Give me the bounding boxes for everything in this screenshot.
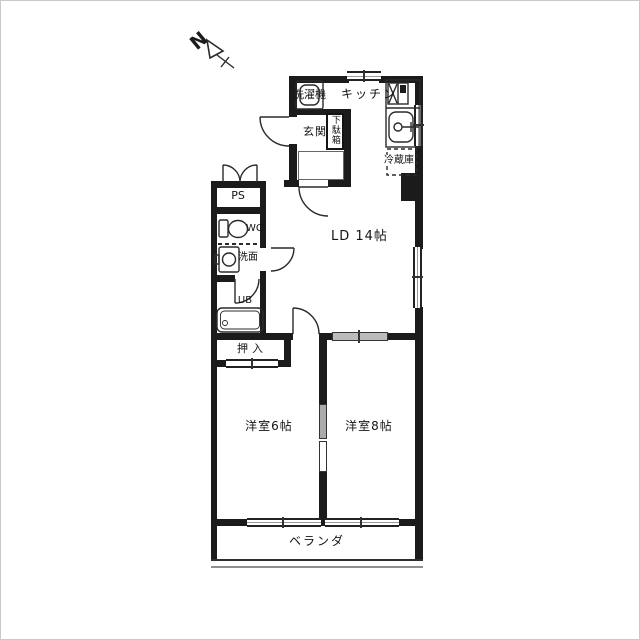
label-washroom: 洗面 <box>238 252 258 263</box>
wall-mid-horizontal-3 <box>388 333 422 340</box>
wall-pillar <box>401 173 423 201</box>
wall-closet-bottom-left <box>211 360 226 367</box>
floorplan-canvas: N <box>0 0 640 640</box>
wall-top-left <box>290 76 349 83</box>
label-washer: 洗濯機 <box>293 89 326 101</box>
window-mid-line <box>247 522 321 523</box>
window-tick <box>282 517 284 528</box>
label-shoe-cabinet: 下駄箱 <box>329 115 339 148</box>
label-pipe-space: PS <box>215 190 261 202</box>
window-tick <box>413 124 424 126</box>
wall-bedroom-divider-lower <box>319 471 327 519</box>
label-toilet: WC <box>246 223 263 234</box>
label-balcony: ベランダ <box>265 535 369 548</box>
north-arrow-icon: N <box>186 27 234 68</box>
entrance-door-arc <box>260 117 289 146</box>
hall-living-door-arc <box>299 187 328 216</box>
wall-right-2 <box>415 144 423 174</box>
wall-hall-stub-right <box>328 180 351 187</box>
fusuma-tick <box>251 358 253 369</box>
wall-bottom-3 <box>397 519 423 526</box>
wall-hall-stub-left <box>284 180 299 187</box>
label-entrance: 玄関 <box>303 126 327 138</box>
label-refrigerator: 冷蔵庫 <box>383 155 415 166</box>
living-side-window <box>413 247 422 308</box>
bedroom-sliding-panel-white <box>319 441 327 472</box>
window-tick <box>363 70 365 82</box>
washroom-door-arc <box>271 248 294 271</box>
wall-left-main <box>211 181 217 567</box>
room8-veranda-window <box>325 518 399 527</box>
wall-mid-horizontal-1 <box>211 333 293 340</box>
sliding-door-living-room8 <box>332 332 388 341</box>
entrance-step <box>298 151 344 180</box>
wall-bedroom-divider-upper <box>319 340 327 404</box>
wall-entrance-right <box>344 109 351 186</box>
closet-fusuma-doors <box>226 359 278 368</box>
room6-door-arc <box>293 308 319 334</box>
svg-text:N: N <box>186 27 212 54</box>
wall-bottom-1 <box>211 519 249 526</box>
label-kitchen: キッチン <box>341 88 397 101</box>
label-unit-bath: UB <box>229 295 261 306</box>
bedroom-sliding-panel-gray <box>319 404 327 439</box>
label-western-room-8: 洋室8帖 <box>331 420 407 433</box>
label-closet: 押入 <box>223 343 281 355</box>
wall-right-3 <box>415 201 423 249</box>
sliding-door-tick <box>358 330 360 343</box>
window-tick <box>412 276 423 278</box>
kitchen-side-window <box>414 105 423 146</box>
label-western-room-6: 洋室6帖 <box>231 420 307 433</box>
window-mid-line <box>325 522 399 523</box>
bathtub-icon <box>217 308 263 332</box>
wall-closet-bottom-right <box>278 360 291 367</box>
label-living-dining: LD 14帖 <box>331 230 388 244</box>
washbasin-icon <box>215 247 239 272</box>
veranda-railing <box>211 559 423 568</box>
wall-ps-bottom <box>211 207 266 214</box>
wall-ps-top <box>211 181 266 188</box>
wall-ub-top-stub <box>211 275 235 282</box>
room6-veranda-window <box>247 518 321 527</box>
wall-mid-horizontal-2 <box>319 333 332 340</box>
ps-double-doors-arc <box>223 165 257 182</box>
kitchen-top-window <box>347 71 381 81</box>
window-tick <box>360 517 362 528</box>
wall-right-1 <box>415 76 423 107</box>
toilet-icon <box>219 220 248 238</box>
